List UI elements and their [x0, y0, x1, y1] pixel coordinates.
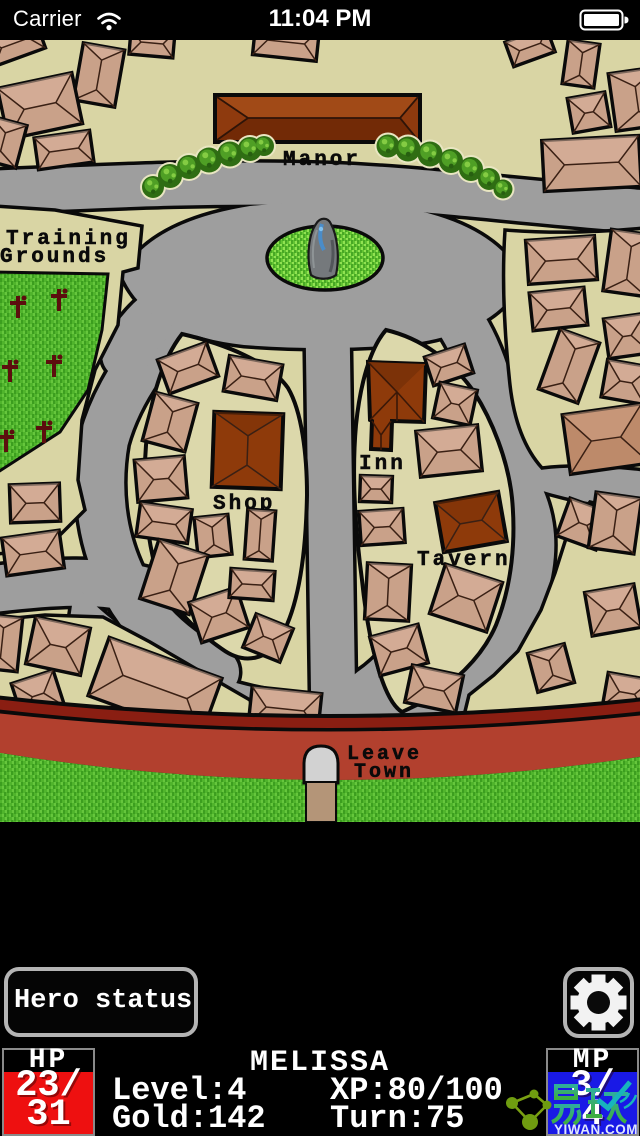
- svg-text:Town: Town: [354, 761, 414, 784]
- svg-text:YIWAN.COM: YIWAN.COM: [554, 1122, 638, 1136]
- svg-text:Inn: Inn: [359, 453, 406, 476]
- svg-text:Grounds: Grounds: [0, 246, 109, 269]
- svg-text:Manor: Manor: [283, 149, 361, 172]
